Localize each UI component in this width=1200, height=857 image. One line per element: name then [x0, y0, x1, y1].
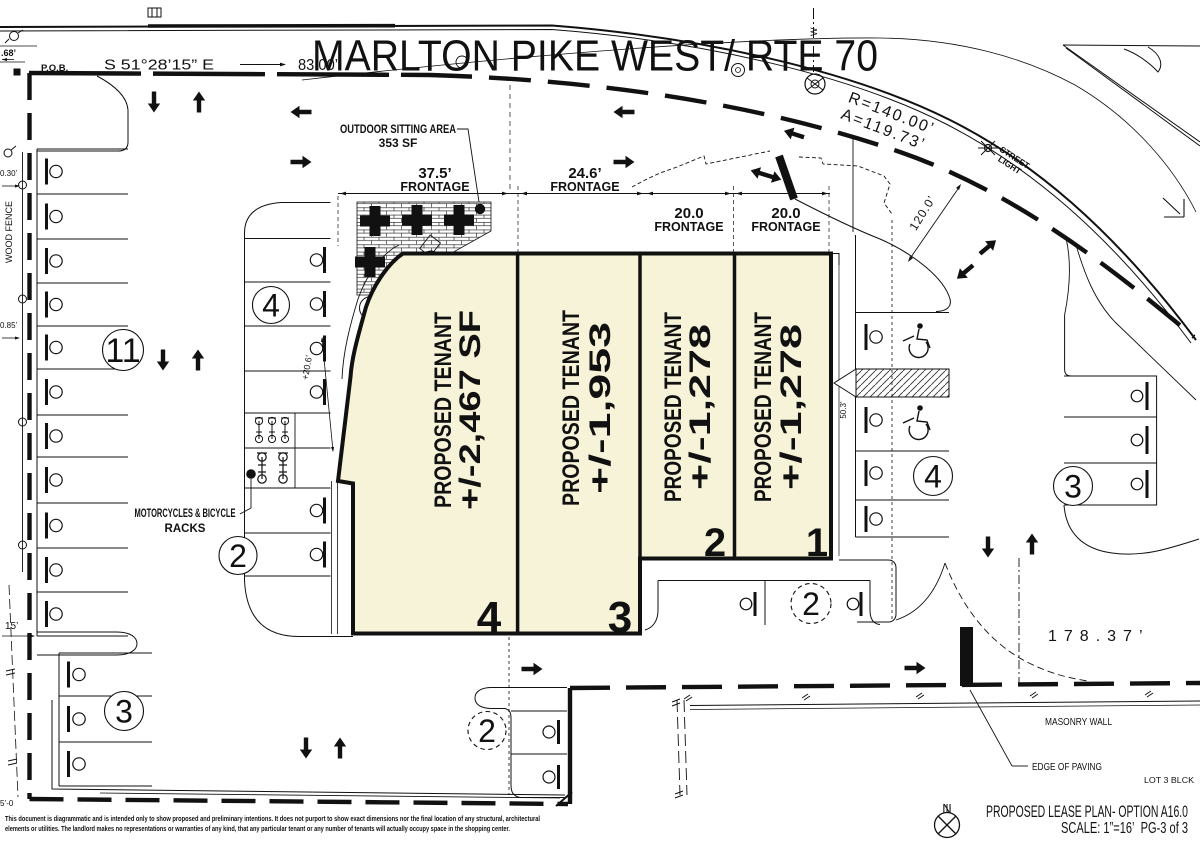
svg-text:5’-0: 5’-0 [0, 799, 14, 808]
svg-text:WOOD FENCE: WOOD FENCE [4, 201, 14, 263]
svg-text:3: 3 [608, 593, 632, 642]
svg-text:EDGE OF PAVING: EDGE OF PAVING [1032, 762, 1102, 773]
svg-text:+/-1,953: +/-1,953 [584, 322, 617, 494]
svg-text:0.85’: 0.85’ [0, 321, 18, 330]
svg-text:PROPOSED TENANT: PROPOSED TENANT [660, 312, 687, 502]
svg-text:50.3’: 50.3’ [839, 401, 848, 419]
svg-text:This document is diagrammatic: This document is diagrammatic and is int… [5, 814, 540, 823]
svg-text:FRONTAGE: FRONTAGE [751, 220, 820, 234]
svg-text:178.37’: 178.37’ [1048, 628, 1150, 645]
svg-text:2: 2 [229, 538, 247, 574]
svg-text:S 51°28’15” E: S 51°28’15” E [104, 58, 214, 74]
svg-text:OUTDOOR SITTING AREA: OUTDOOR SITTING AREA [340, 122, 456, 136]
svg-text:3: 3 [115, 694, 133, 730]
svg-text:+/-1,278: +/-1,278 [684, 324, 717, 490]
svg-text:2: 2 [802, 586, 820, 622]
svg-text:83.00’: 83.00’ [298, 57, 338, 74]
svg-text:15’: 15’ [5, 621, 18, 632]
svg-text:11: 11 [105, 332, 140, 370]
svg-text:MOTORCYCLES & BICYCLE: MOTORCYCLES & BICYCLE [135, 508, 236, 520]
svg-text:elements or utilities. The lan: elements or utilities. The landlord make… [5, 824, 510, 833]
svg-text:SCALE: 1”=16’ PG-3 of 3: SCALE: 1”=16’ PG-3 of 3 [1061, 820, 1188, 837]
svg-text:W: W [809, 27, 819, 36]
svg-text:MASONRY WALL: MASONRY WALL [1045, 717, 1112, 728]
svg-text:3: 3 [1064, 469, 1082, 505]
svg-text:2: 2 [704, 521, 726, 565]
svg-text:FRONTAGE: FRONTAGE [550, 180, 619, 194]
svg-text:.68’: .68’ [1, 48, 16, 58]
svg-text:PROPOSED TENANT: PROPOSED TENANT [430, 312, 457, 508]
svg-text:353 SF: 353 SF [379, 136, 418, 150]
svg-text:MARLTON PIKE WEST/ RTE 70: MARLTON PIKE WEST/ RTE 70 [312, 33, 878, 81]
svg-text:LOT 3 BLCK: LOT 3 BLCK [1144, 775, 1194, 785]
svg-text:P.O.B.: P.O.B. [41, 63, 68, 74]
svg-text:PROPOSED LEASE PLAN- OPTION A1: PROPOSED LEASE PLAN- OPTION A16.0 [986, 802, 1188, 821]
svg-text:4: 4 [262, 288, 280, 324]
svg-text:2: 2 [478, 713, 496, 749]
svg-text:PROPOSED TENANT: PROPOSED TENANT [750, 312, 777, 502]
svg-text:+/-1,278: +/-1,278 [775, 324, 808, 490]
svg-text:4: 4 [477, 593, 502, 642]
svg-text:1: 1 [806, 521, 828, 565]
svg-text:PROPOSED TENANT: PROPOSED TENANT [558, 310, 585, 506]
svg-text:+/-2,467 SF: +/-2,467 SF [454, 310, 487, 510]
svg-text:4: 4 [924, 459, 942, 495]
svg-text:0.30’: 0.30’ [0, 169, 18, 178]
svg-text:FRONTAGE: FRONTAGE [654, 220, 723, 234]
svg-text:FRONTAGE: FRONTAGE [400, 180, 469, 194]
svg-text:RACKS: RACKS [165, 523, 206, 535]
